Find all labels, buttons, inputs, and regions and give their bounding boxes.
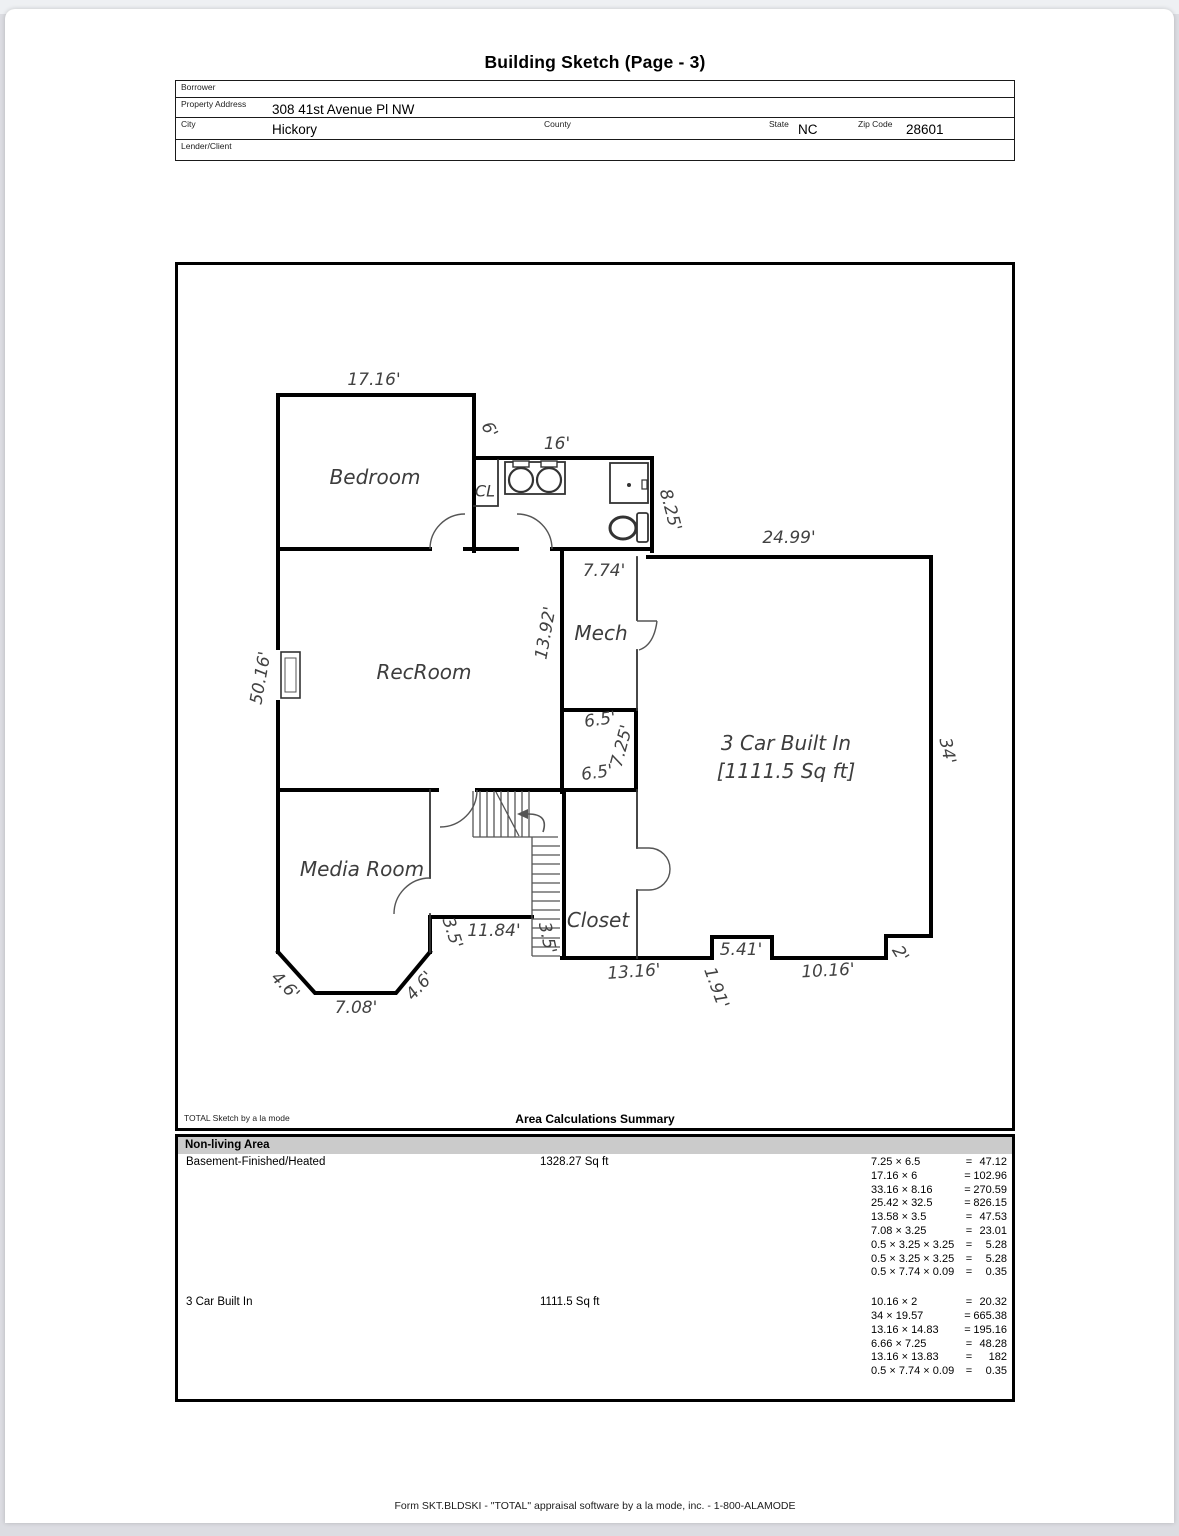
calc-expression: 7.25 × 6.5 [871, 1156, 963, 1168]
calc-expression: 34 × 19.57 [871, 1310, 962, 1322]
room-label: Mech [574, 621, 627, 645]
window-symbol [275, 650, 303, 700]
calc-equals: = [963, 1239, 975, 1251]
calc-expression: 0.5 × 3.25 × 3.25 [871, 1253, 963, 1265]
calc-equals: = [963, 1266, 975, 1278]
summary-row-name: Basement-Finished/Heated [186, 1156, 325, 1168]
calc-expression: 13.16 × 14.83 [871, 1324, 962, 1336]
calculation-line: 25.42 × 32.5=826.15 [871, 1197, 1007, 1209]
shower-icon [610, 463, 648, 503]
calculation-line: 7.08 × 3.25=23.01 [871, 1225, 1007, 1237]
calculation-line: 13.16 × 14.83=195.16 [871, 1324, 1007, 1336]
dimension-label: 10.16' [801, 960, 855, 983]
toilet-icon [610, 513, 648, 542]
calculation-line: 33.16 × 8.16=270.59 [871, 1184, 1007, 1196]
calc-equals: = [962, 1324, 974, 1336]
calc-result: 665.38 [973, 1310, 1007, 1322]
dimension-label: 7.08' [335, 998, 378, 1018]
calc-result: 23.01 [975, 1225, 1007, 1237]
calc-result: 47.12 [975, 1156, 1007, 1168]
calc-equals: = [963, 1211, 975, 1223]
room-label: [1111.5 Sq ft] [717, 759, 856, 783]
calculation-line: 0.5 × 3.25 × 3.25=5.28 [871, 1253, 1007, 1265]
calc-result: 0.35 [975, 1266, 1007, 1278]
dimension-label: 7.74' [583, 561, 626, 581]
calc-equals: = [963, 1253, 975, 1265]
calc-result: 826.15 [973, 1197, 1007, 1209]
dimension-label: 24.99' [762, 528, 815, 548]
calc-result: 182 [975, 1351, 1007, 1363]
calc-expression: 13.16 × 13.83 [871, 1351, 963, 1363]
calc-equals: = [963, 1225, 975, 1237]
calc-result: 5.28 [975, 1253, 1007, 1265]
calc-equals: = [962, 1310, 974, 1322]
calculation-line: 17.16 × 6=102.96 [871, 1170, 1007, 1182]
calculation-line: 13.58 × 3.5=47.53 [871, 1211, 1007, 1223]
calculation-line: 0.5 × 7.74 × 0.09=0.35 [871, 1365, 1007, 1377]
calculation-line: 13.16 × 13.83=182 [871, 1351, 1007, 1363]
room-label: Closet [567, 908, 629, 932]
calculation-line: 7.25 × 6.5=47.12 [871, 1156, 1007, 1168]
form-footer: Form SKT.BLDSKI - "TOTAL" appraisal soft… [175, 1500, 1015, 1512]
calc-expression: 13.58 × 3.5 [871, 1211, 963, 1223]
dimension-label: 5.41' [720, 940, 763, 960]
calc-expression: 6.66 × 7.25 [871, 1338, 963, 1350]
document-content: Building Sketch (Page - 3) Borrower Prop… [0, 0, 1179, 1536]
non-living-area-band: Non-living Area [178, 1137, 1012, 1154]
calc-expression: 17.16 × 6 [871, 1170, 962, 1182]
dimension-label: 11.84' [467, 921, 520, 941]
double-sink-icon [505, 461, 565, 494]
calc-result: 102.96 [973, 1170, 1007, 1182]
stairs-direction-arrow [528, 814, 544, 832]
summary-row-area: 1111.5 Sq ft [540, 1296, 599, 1308]
area-calculations-table: Non-living Area Basement-Finished/Heated… [175, 1134, 1015, 1402]
room-label: 3 Car Built In [721, 731, 851, 755]
room-label: RecRoom [376, 660, 471, 684]
calculation-line: 0.5 × 7.74 × 0.09=0.35 [871, 1266, 1007, 1278]
calc-result: 0.35 [975, 1365, 1007, 1377]
calc-equals: = [962, 1197, 974, 1209]
calc-expression: 25.42 × 32.5 [871, 1197, 962, 1209]
calc-expression: 10.16 × 2 [871, 1296, 963, 1308]
calc-equals: = [963, 1351, 975, 1363]
calc-result: 5.28 [975, 1239, 1007, 1251]
calc-result: 48.28 [975, 1338, 1007, 1350]
calc-expression: 7.08 × 3.25 [871, 1225, 963, 1237]
room-label: CL [475, 482, 495, 501]
calculation-line: 34 × 19.57=665.38 [871, 1310, 1007, 1322]
calc-equals: = [962, 1184, 974, 1196]
calc-result: 195.16 [973, 1324, 1007, 1336]
calc-equals: = [962, 1170, 974, 1182]
dimension-label: 16' [544, 434, 570, 454]
calc-equals: = [963, 1296, 975, 1308]
dimension-label: 13.16' [607, 960, 662, 984]
calculation-line: 6.66 × 7.25=48.28 [871, 1338, 1007, 1350]
room-label: Media Room [300, 857, 424, 881]
calc-result: 270.59 [973, 1184, 1007, 1196]
calc-equals: = [963, 1365, 975, 1377]
calculation-line: 0.5 × 3.25 × 3.25=5.28 [871, 1239, 1007, 1251]
summary-row-name: 3 Car Built In [186, 1296, 252, 1308]
dimension-label: 17.16' [347, 370, 400, 390]
room-label: Bedroom [330, 465, 421, 489]
calc-equals: = [963, 1338, 975, 1350]
non-living-area-label: Non-living Area [185, 1139, 270, 1151]
calc-expression: 0.5 × 7.74 × 0.09 [871, 1266, 963, 1278]
calc-result: 47.53 [975, 1211, 1007, 1223]
calc-expression: 0.5 × 7.74 × 0.09 [871, 1365, 963, 1377]
summary-row-area: 1328.27 Sq ft [540, 1156, 608, 1168]
calc-expression: 0.5 × 3.25 × 3.25 [871, 1239, 963, 1251]
calc-equals: = [963, 1156, 975, 1168]
calc-result: 20.32 [975, 1296, 1007, 1308]
calculation-line: 10.16 × 2=20.32 [871, 1296, 1007, 1308]
calc-expression: 33.16 × 8.16 [871, 1184, 962, 1196]
area-calculations-title: Area Calculations Summary [175, 1112, 1015, 1126]
